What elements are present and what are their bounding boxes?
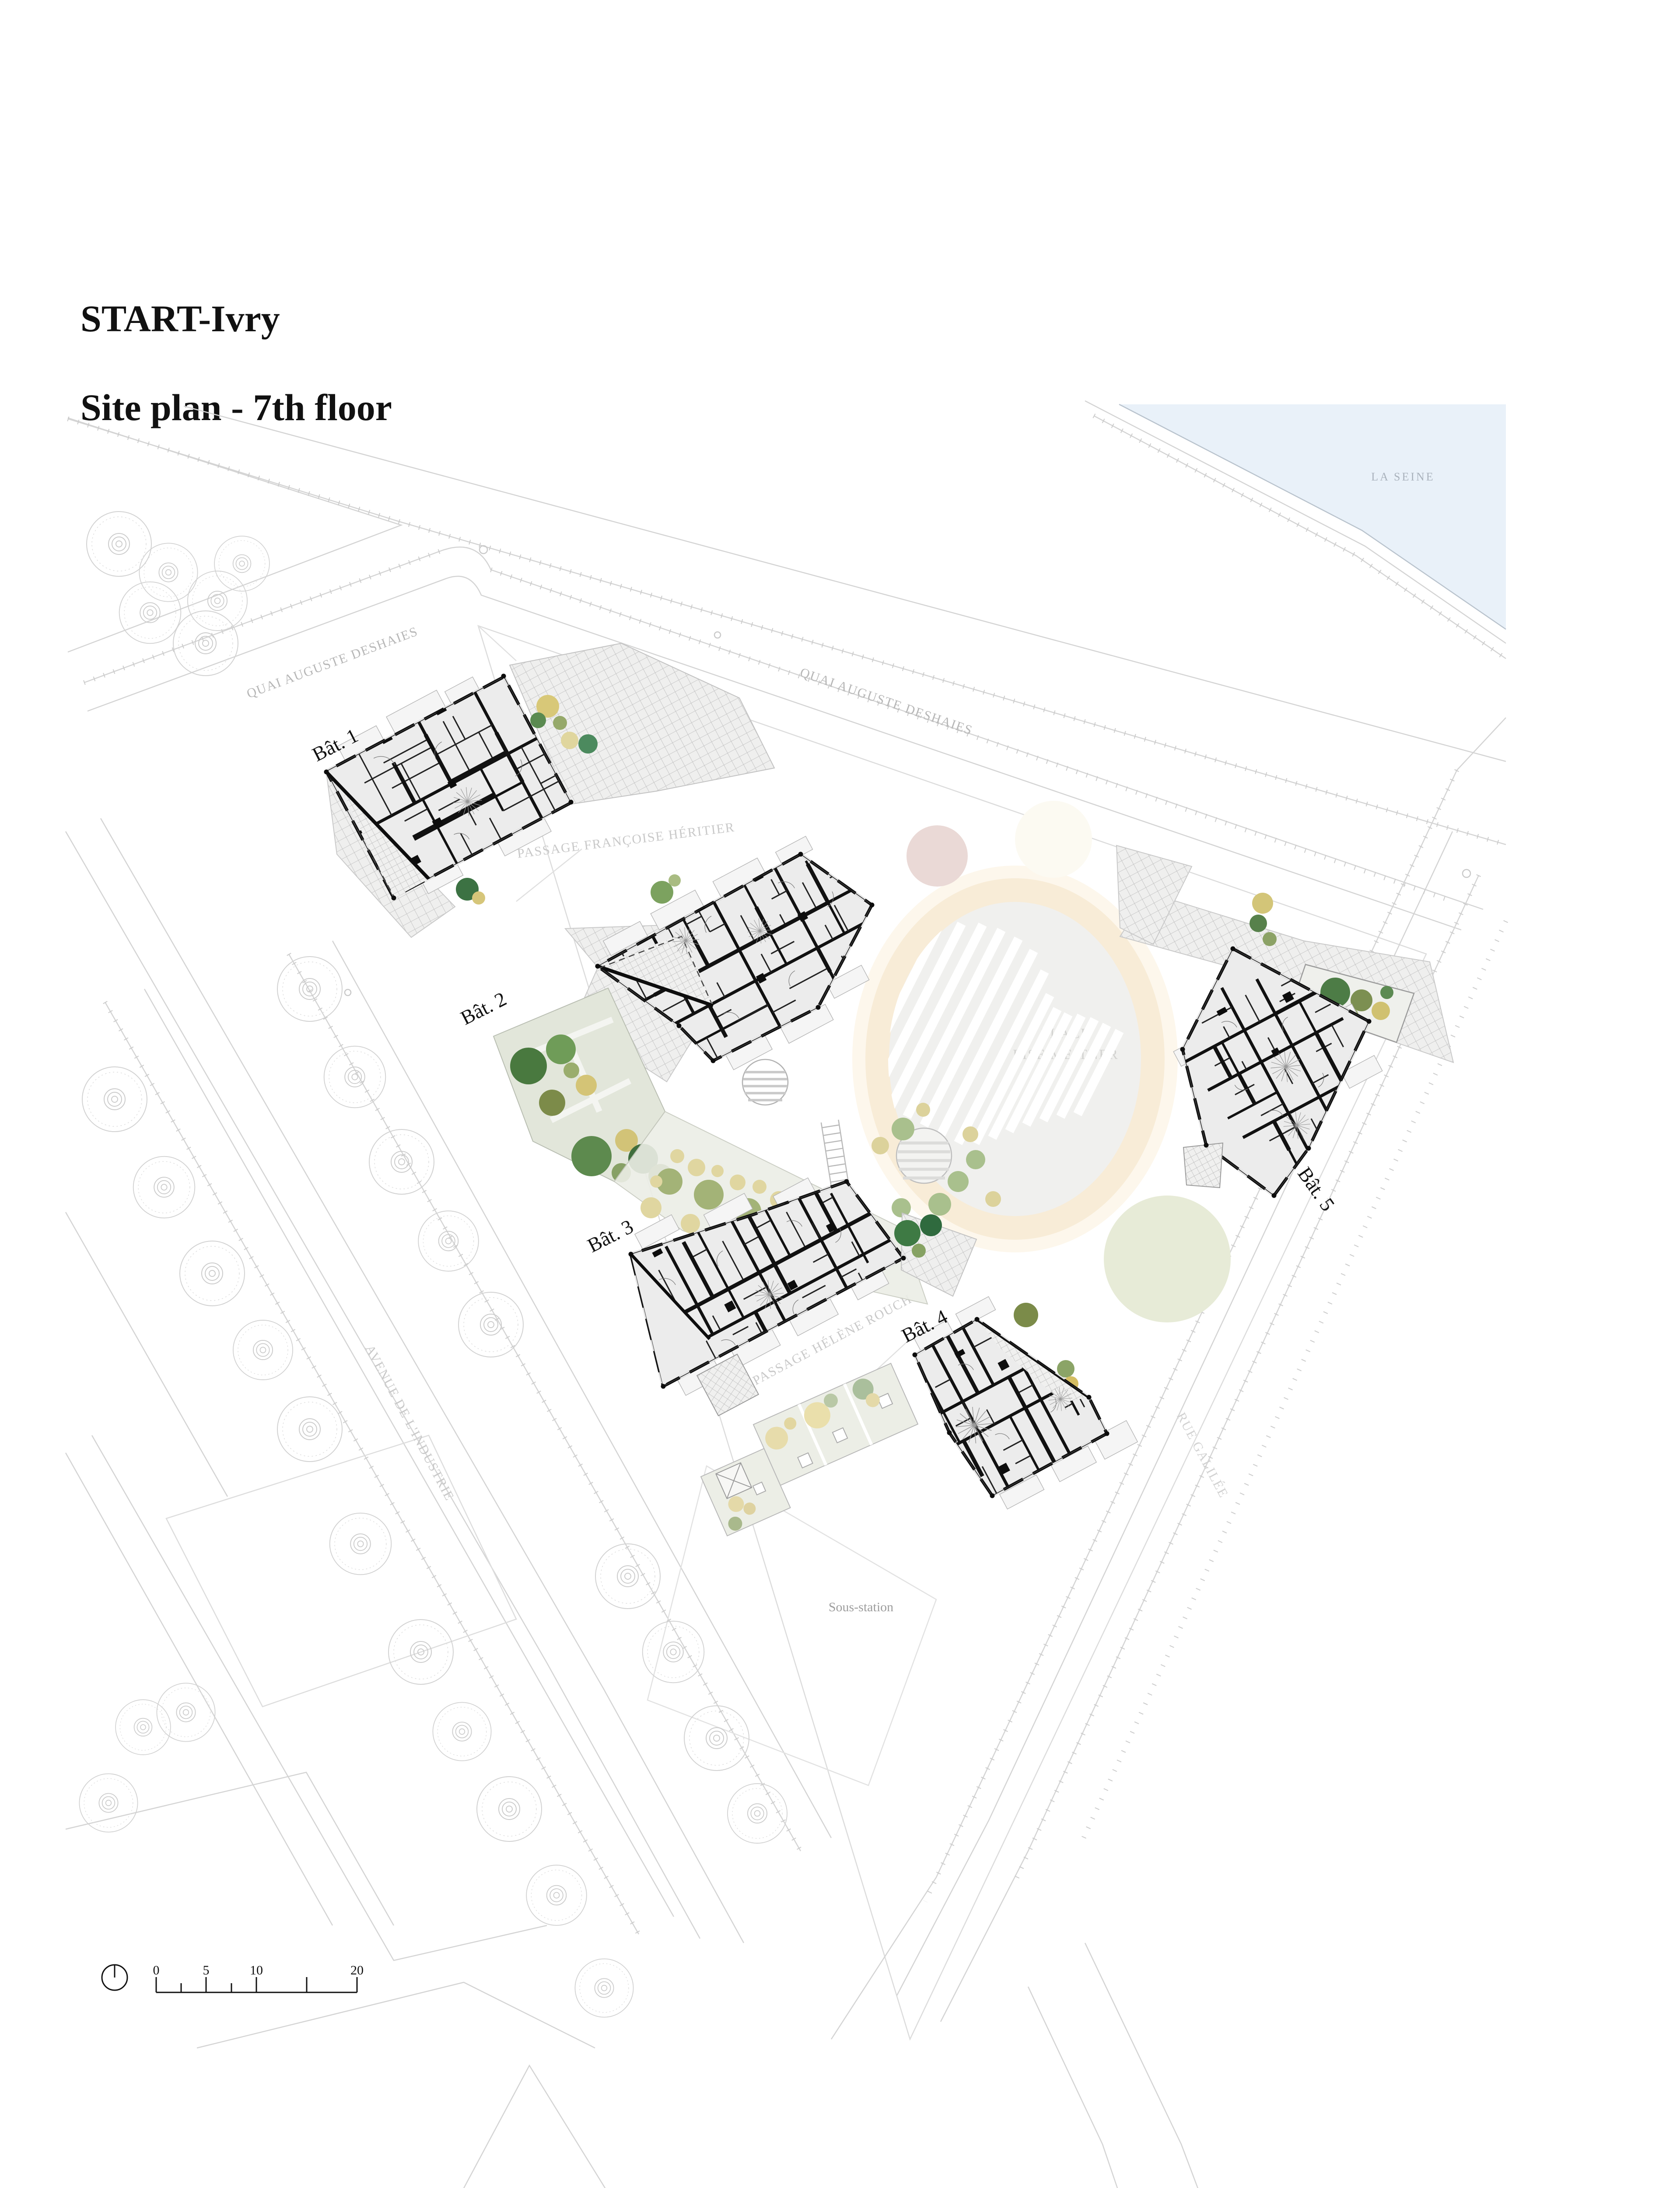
svg-text:LA SEINE: LA SEINE xyxy=(1371,470,1435,483)
svg-text:START-Ivry: START-Ivry xyxy=(80,298,280,340)
svg-text:Sous-station: Sous-station xyxy=(829,1600,893,1614)
svg-text:Site plan - 7th floor: Site plan - 7th floor xyxy=(80,386,392,428)
svg-text:0: 0 xyxy=(153,1963,160,1978)
svg-text:20: 20 xyxy=(350,1963,364,1978)
svg-text:10: 10 xyxy=(250,1963,263,1978)
svg-text:5: 5 xyxy=(203,1963,210,1978)
